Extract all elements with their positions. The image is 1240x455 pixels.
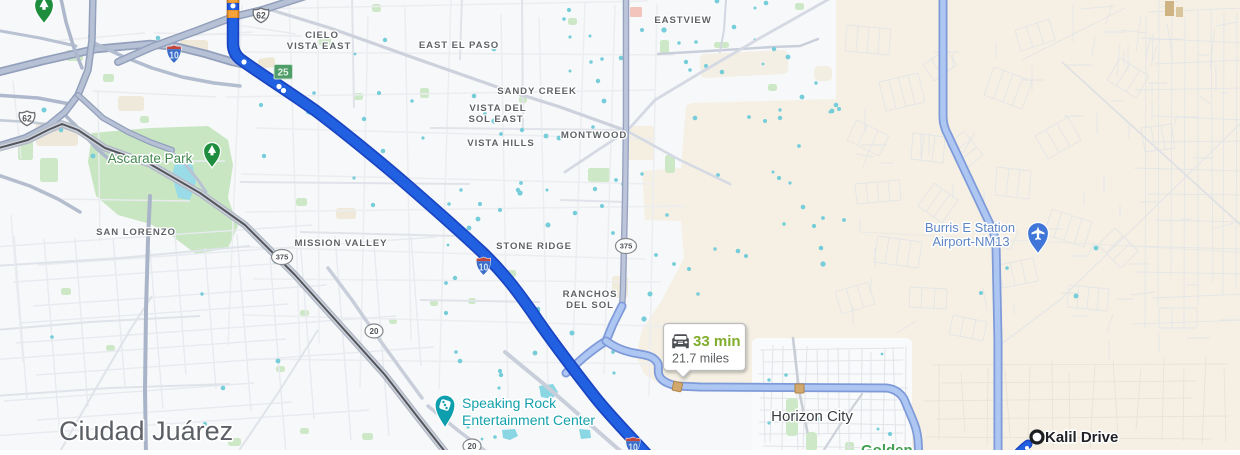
svg-text:MONTWOOD: MONTWOOD bbox=[561, 130, 627, 141]
svg-text:MISSION VALLEY: MISSION VALLEY bbox=[295, 238, 388, 249]
svg-text:EAST EL PASO: EAST EL PASO bbox=[419, 40, 499, 51]
svg-text:Ascarate Park: Ascarate Park bbox=[108, 151, 193, 166]
svg-text:21.7 miles: 21.7 miles bbox=[672, 352, 729, 366]
svg-text:Burris E Station: Burris E Station bbox=[925, 220, 1015, 235]
svg-text:62: 62 bbox=[22, 114, 32, 124]
svg-text:10: 10 bbox=[479, 262, 489, 273]
svg-text:VISTA EAST: VISTA EAST bbox=[287, 41, 351, 52]
svg-text:SANDY CREEK: SANDY CREEK bbox=[497, 86, 577, 97]
svg-text:SAN LORENZO: SAN LORENZO bbox=[96, 227, 176, 238]
svg-text:375: 375 bbox=[620, 242, 633, 251]
svg-text:20: 20 bbox=[370, 327, 379, 336]
svg-text:SOL EAST: SOL EAST bbox=[469, 114, 524, 125]
svg-text:CIELO: CIELO bbox=[305, 30, 339, 41]
svg-text:375: 375 bbox=[276, 253, 289, 262]
svg-text:Entertainment Center: Entertainment Center bbox=[462, 412, 595, 428]
svg-text:25: 25 bbox=[277, 68, 289, 79]
svg-text:Horizon City: Horizon City bbox=[771, 408, 853, 425]
svg-text:RANCHOS: RANCHOS bbox=[563, 289, 618, 300]
svg-text:VISTA HILLS: VISTA HILLS bbox=[467, 138, 534, 149]
svg-text:Airport-NM13: Airport-NM13 bbox=[932, 234, 1009, 249]
svg-text:62: 62 bbox=[256, 11, 266, 21]
svg-text:Speaking Rock: Speaking Rock bbox=[462, 395, 557, 411]
svg-text:33 min: 33 min bbox=[693, 333, 741, 350]
svg-text:Ciudad Juárez: Ciudad Juárez bbox=[59, 416, 233, 446]
svg-text:Kalil Drive: Kalil Drive bbox=[1045, 429, 1118, 446]
svg-text:Golden: Golden bbox=[861, 442, 913, 450]
svg-text:STONE RIDGE: STONE RIDGE bbox=[496, 241, 572, 252]
svg-text:VISTA DEL: VISTA DEL bbox=[469, 103, 526, 114]
svg-text:EASTVIEW: EASTVIEW bbox=[654, 15, 711, 26]
svg-text:10: 10 bbox=[169, 50, 179, 61]
svg-text:DEL SOL: DEL SOL bbox=[566, 300, 614, 311]
svg-text:10: 10 bbox=[628, 442, 638, 450]
svg-text:20: 20 bbox=[468, 442, 477, 450]
